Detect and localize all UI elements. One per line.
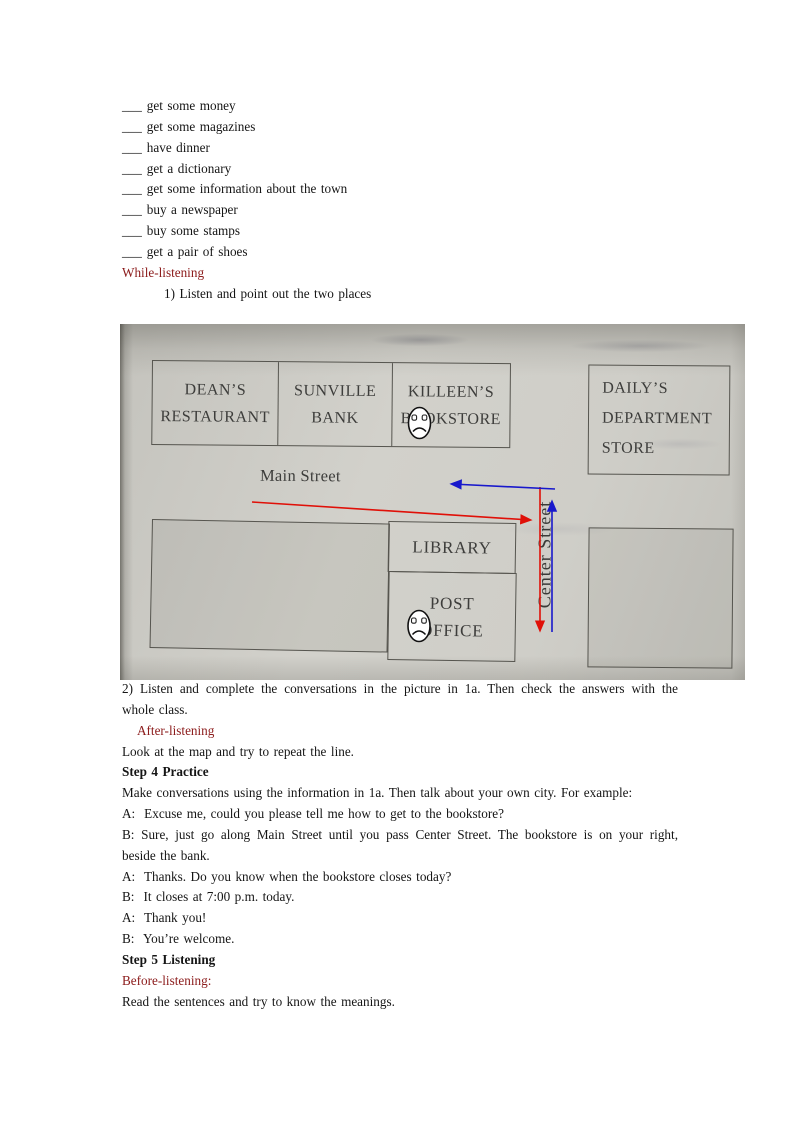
map-photo: DEAN’S RESTAURANT SUNVILLE BANK KILLEEN’…: [120, 324, 745, 680]
checklist-item-label: get a pair of shoes: [147, 244, 248, 259]
building-label: RESTAURANT: [152, 403, 278, 431]
after-listening-line: Look at the map and try to repeat the li…: [122, 742, 678, 763]
dialogue-line: B: It closes at 7:00 p.m. today.: [122, 887, 678, 908]
dialogue-line: beside the bank.: [122, 846, 678, 867]
building-post-office: POST OFFICE: [387, 571, 516, 662]
checklist-item: ___get a pair of shoes: [122, 242, 688, 263]
main-street-label: Main Street: [260, 466, 341, 487]
building-killeens-bookstore: KILLEEN’S BOOKSTORE: [391, 363, 510, 447]
blank-line: ___: [122, 161, 142, 176]
after-listening-heading: After-listening: [122, 721, 678, 742]
building-dailys-department-store: DAILY’S DEPARTMENT STORE: [588, 365, 731, 476]
building-label: BOOKSTORE: [392, 405, 510, 433]
checklist-item: ___get some magazines: [122, 117, 688, 138]
checklist-item: ___get some money: [122, 96, 688, 117]
lesson-text-section: 2) Listen and complete the conversations…: [122, 679, 678, 1013]
before-listening-heading: Before-listening:: [122, 971, 678, 992]
building-label: KILLEEN’S: [392, 378, 510, 406]
building-library: LIBRARY: [388, 521, 517, 574]
unlabeled-block-southeast: [587, 527, 733, 668]
checklist-item-label: buy a newspaper: [147, 202, 238, 217]
checklist-item: ___have dinner: [122, 138, 688, 159]
building-label: SUNVILLE: [279, 377, 392, 405]
checklist-item: ___buy some stamps: [122, 221, 688, 242]
dialogue-line: A: Thanks. Do you know when the bookstor…: [122, 867, 678, 888]
checklist-item-label: get some information about the town: [147, 181, 347, 196]
step5-line: Read the sentences and try to know the m…: [122, 992, 678, 1013]
building-label: LIBRARY: [412, 537, 492, 558]
checklist-item: ___buy a newspaper: [122, 200, 688, 221]
center-street-label: Center Street: [535, 475, 556, 635]
checklist-item-label: buy some stamps: [147, 223, 240, 238]
while-listening-heading: While-listening: [122, 263, 688, 284]
step4-heading: Step 4 Practice: [122, 762, 678, 783]
step5-heading: Step 5 Listening: [122, 950, 678, 971]
checklist-item-label: have dinner: [147, 140, 210, 155]
checklist-section: ___get some money ___get some magazines …: [122, 96, 688, 304]
checklist-item-label: get a dictionary: [147, 161, 231, 176]
checklist-item: ___get some information about the town: [122, 179, 688, 200]
blank-line: ___: [122, 119, 142, 134]
blank-line: ___: [122, 244, 142, 259]
dialogue-line: B: You’re welcome.: [122, 929, 678, 950]
blank-line: ___: [122, 140, 142, 155]
step4-intro: Make conversations using the information…: [122, 783, 678, 804]
checklist-item: ___get a dictionary: [122, 159, 688, 180]
main-street-north-block: DEAN’S RESTAURANT SUNVILLE BANK KILLEEN’…: [151, 360, 511, 448]
while-listening-task2-line2: whole class.: [122, 700, 678, 721]
building-label: STORE: [602, 434, 729, 465]
dialogue-line: B: Sure, just go along Main Street until…: [122, 825, 678, 846]
blank-line: ___: [122, 181, 142, 196]
building-label: DAILY’S: [602, 374, 729, 405]
checklist-item-label: get some money: [147, 98, 236, 113]
building-label: BANK: [279, 404, 392, 432]
building-label: DEAN’S: [153, 376, 279, 404]
building-deans-restaurant: DEAN’S RESTAURANT: [152, 361, 278, 445]
building-label: DEPARTMENT: [602, 404, 729, 435]
building-label: POST: [430, 589, 475, 617]
building-label: OFFICE: [420, 616, 484, 644]
while-listening-task2-line1: 2) Listen and complete the conversations…: [122, 679, 678, 700]
checklist-item-label: get some magazines: [147, 119, 256, 134]
blank-line: ___: [122, 202, 142, 217]
building-sunville-bank: SUNVILLE BANK: [278, 362, 392, 446]
dialogue-line: A: Thank you!: [122, 908, 678, 929]
blank-line: ___: [122, 98, 142, 113]
while-listening-task1: 1) Listen and point out the two places: [122, 284, 688, 305]
blank-line: ___: [122, 223, 142, 238]
unlabeled-block-southwest: [150, 519, 390, 653]
dialogue-line: A: Excuse me, could you please tell me h…: [122, 804, 678, 825]
